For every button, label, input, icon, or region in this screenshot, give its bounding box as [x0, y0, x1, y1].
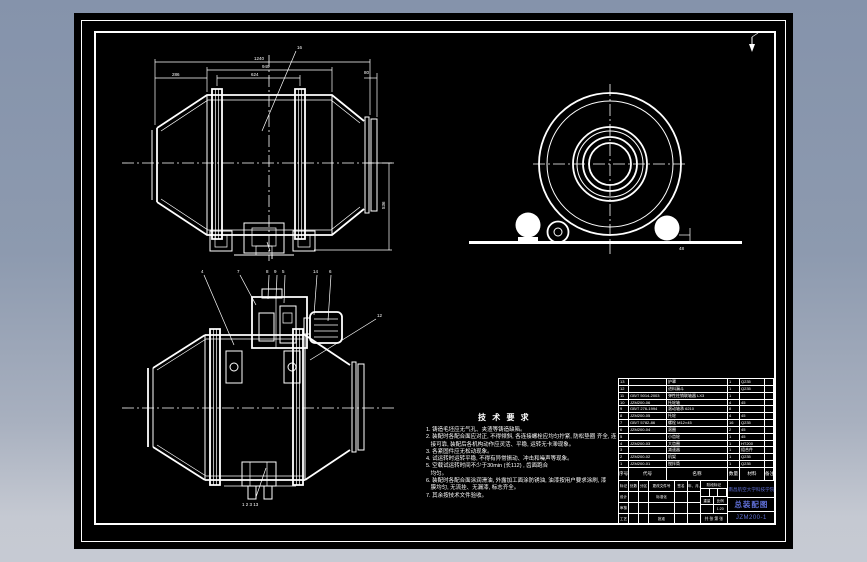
cell: 弹性柱销联轴器 LX3	[667, 393, 728, 399]
cell	[765, 420, 774, 426]
cell: 1	[728, 393, 740, 399]
tech-requirement-line: 2. 装配时各配合面应对正, 不得倾斜, 各连接螺栓应均匀拧紧, 防松垫圈 齐全…	[426, 434, 616, 441]
cell	[629, 434, 667, 440]
motor	[310, 312, 342, 343]
table-row: 7GB/T 5782-86螺栓 M12×4516Q235	[619, 419, 776, 426]
dim-band-spacing: 624	[251, 72, 259, 77]
stage-mark-label: 阶段标记	[701, 481, 727, 489]
cell	[675, 503, 688, 514]
cell	[629, 514, 639, 525]
parts-list-table: 13护罩1Q23512进料漏斗1Q23511GB/T 5014-2003弹性柱销…	[618, 378, 776, 480]
drawing-number: JZM200-1	[728, 512, 775, 524]
support-roller	[655, 216, 680, 241]
cell: Q235	[740, 454, 765, 460]
cell: 名称	[667, 468, 728, 480]
side-view-dimensions: 1240 940 624 286 80 536	[155, 56, 392, 250]
drive-pulley	[516, 213, 541, 238]
cell: JZM200-01	[629, 461, 667, 467]
cell: 进料漏斗	[667, 386, 728, 392]
dim-mid-length: 940	[262, 64, 270, 69]
cell	[765, 406, 774, 412]
table-row: 4JZM200-03大齿圈1HT200	[619, 440, 776, 447]
cell	[639, 492, 649, 503]
cell	[765, 461, 774, 467]
tech-requirement-line: 7. 其余按技术文件验收。	[426, 493, 616, 500]
cell: 10	[619, 400, 629, 406]
table-row: 2JZM200-02机架1Q235	[619, 453, 776, 460]
cell	[765, 427, 774, 433]
cell: 8	[619, 413, 629, 419]
cell	[639, 503, 649, 514]
title-block-middle: 阶段标记 重量 比例 1:20 共 张 第 张	[701, 481, 728, 524]
cell: 机架	[667, 454, 728, 460]
cell	[629, 379, 667, 385]
cell: 小齿轮	[667, 434, 728, 440]
cell: 5	[619, 434, 629, 440]
cell	[765, 447, 774, 453]
cell: 材料	[740, 468, 765, 480]
cell: 托轮	[667, 413, 728, 419]
weight-label: 重量	[701, 497, 714, 505]
cell: GB/T 5782-86	[629, 420, 667, 426]
cell: JZM200-06	[629, 400, 667, 406]
cell: 护罩	[667, 379, 728, 385]
cell: Q235	[740, 379, 765, 385]
cell	[649, 503, 675, 514]
section-label: Ⅱ	[271, 255, 273, 260]
cell: 45	[740, 434, 765, 440]
table-row: 6JZM200-04滚圈245	[619, 426, 776, 433]
projection-arrow-icon	[749, 33, 758, 52]
title-block-revision-grid: 标记处数分区更改文件号签名年、月、日 设计标准化审核工艺批准	[619, 481, 701, 524]
callout-1: 4	[201, 269, 204, 274]
drive-unit	[226, 289, 342, 383]
cell: 螺栓 M12×45	[667, 420, 728, 426]
tech-requirement-line: 均匀。	[426, 471, 616, 478]
cell: 12	[619, 386, 629, 392]
cell: 45	[740, 400, 765, 406]
cell	[629, 386, 667, 392]
cell	[629, 447, 667, 453]
role-rows: 设计标准化审核工艺批准	[619, 492, 701, 525]
cell: 滚动轴承 6210	[667, 406, 728, 412]
cell: 分区	[639, 481, 649, 492]
table-row: 11GB/T 5014-2003弹性柱销联轴器 LX31	[619, 392, 776, 399]
cell: 搅拌筒	[667, 461, 728, 467]
callout-side-leader: 16	[297, 45, 303, 50]
cell	[675, 492, 688, 503]
callout-6: 14	[313, 269, 319, 274]
table-row: 12进料漏斗1Q235	[619, 385, 776, 392]
cell: 1	[728, 434, 740, 440]
cell: 4	[728, 413, 740, 419]
cell: 4	[619, 441, 629, 447]
ground-line	[469, 241, 742, 244]
stage-mark-box	[701, 489, 727, 497]
dim-roller: 48	[679, 246, 685, 251]
drawing-title: 总装配图	[728, 498, 775, 512]
table-row: 1JZM200-01搅拌筒1Q235	[619, 460, 776, 467]
cell: Q235	[740, 420, 765, 426]
cell: 更改文件号	[649, 481, 675, 492]
cell: 45	[740, 427, 765, 433]
cell	[675, 514, 688, 525]
cell: GB/T 5014-2003	[629, 393, 667, 399]
dim-left-cone: 286	[172, 72, 180, 77]
cell	[629, 503, 639, 514]
pinion-gear	[548, 222, 569, 243]
cell	[765, 393, 774, 399]
cell: 处数	[629, 481, 639, 492]
cell: 16	[728, 420, 740, 426]
cell: 审核	[619, 503, 629, 514]
callout-7: 6	[329, 269, 332, 274]
drum-end-view: 48	[469, 84, 742, 254]
cell: JZM200-05	[629, 413, 667, 419]
title-block-right: 南昌航空大学科技学院 总装配图 JZM200-1	[728, 481, 775, 524]
cell	[765, 379, 774, 385]
callout-right: 12	[377, 313, 383, 318]
cell: 1	[728, 454, 740, 460]
weight-scale-values: 1:20	[701, 505, 727, 514]
tech-requirement-line: 5. 空载试运转时间不少于30min (长112) , 齿面跑合	[426, 463, 616, 470]
callout-4: 9	[274, 269, 277, 274]
cell: HT200	[740, 441, 765, 447]
technical-requirements-lines: 1. 铸造毛坯应无气孔、夹渣等铸造缺陷。2. 装配时各配合面应对正, 不得倾斜,…	[426, 427, 616, 500]
cell: Q235	[740, 386, 765, 392]
weight-scale-labels: 重量 比例	[701, 497, 727, 506]
cell	[688, 503, 701, 514]
table-row: 5小齿轮145	[619, 433, 776, 440]
cell: 4	[728, 400, 740, 406]
cell	[765, 454, 774, 460]
technical-requirements-title: 技 术 要 求	[478, 412, 616, 423]
cell: 签名	[675, 481, 688, 492]
dim-right-flange: 80	[364, 70, 370, 75]
cell: 年、月、日	[688, 481, 701, 492]
sheet-count: 共 张 第 张	[701, 514, 727, 524]
cell	[688, 492, 701, 503]
table-row: 10JZM200-06托轮轴445	[619, 399, 776, 406]
technical-requirements: 技 术 要 求 1. 铸造毛坯应无气孔、夹渣等铸造缺陷。2. 装配时各配合面应对…	[426, 412, 616, 500]
cell: 3	[619, 447, 629, 453]
company-name: 南昌航空大学科技学院	[728, 481, 775, 498]
title-block-role-row: 审核	[619, 503, 701, 514]
cell: 序号	[619, 468, 629, 480]
dim-height: 536	[381, 201, 386, 209]
cell	[765, 386, 774, 392]
cell	[765, 441, 774, 447]
cell	[765, 413, 774, 419]
cell: 13	[619, 379, 629, 385]
cell: 大齿圈	[667, 441, 728, 447]
cell: 工艺	[619, 514, 629, 525]
cell	[765, 434, 774, 440]
cell: 9	[619, 406, 629, 412]
cell	[740, 393, 765, 399]
cell: 代号	[629, 468, 667, 480]
table-row: 13护罩1Q235	[619, 378, 776, 385]
cell: 45	[740, 413, 765, 419]
drum-side-view: 1240 940 624 286 80 536 16	[122, 45, 396, 261]
cell	[688, 514, 701, 525]
cell: Q235	[740, 461, 765, 467]
cell: 1	[728, 441, 740, 447]
table-row: 3减速器1组合件	[619, 446, 776, 453]
tech-requirement-line: 接可靠, 装配后各机构动作应灵活、平稳, 运转无卡滞现象。	[426, 442, 616, 449]
cell: JZM200-02	[629, 454, 667, 460]
cell: 设计	[619, 492, 629, 503]
cell	[765, 400, 774, 406]
cell: 1	[728, 447, 740, 453]
cell: 6	[619, 427, 629, 433]
cell: 备注	[765, 468, 774, 480]
callout-5: 5	[282, 269, 285, 274]
cell	[629, 492, 639, 503]
cell: 标记	[619, 481, 629, 492]
scale-label: 比例	[714, 497, 727, 505]
cell: JZM200-03	[629, 441, 667, 447]
cell: 1	[728, 386, 740, 392]
cell: 滚圈	[667, 427, 728, 433]
cell: JZM200-04	[629, 427, 667, 433]
cell: 组合件	[740, 447, 765, 453]
cell: 托轮轴	[667, 400, 728, 406]
dim-overall-length: 1240	[254, 56, 265, 61]
cell	[639, 514, 649, 525]
title-block-role-row: 设计标准化	[619, 492, 701, 503]
cell: 标准化	[649, 492, 675, 503]
tech-requirement-line: 膜均匀, 无流挂、无漏漆, 标志齐全。	[426, 485, 616, 492]
bom-header-row: 序号代号名称数量材料备注	[619, 467, 776, 480]
title-block-role-row: 工艺批准	[619, 514, 701, 525]
drum-drive-view: 4 7 8 9 5 14 6 12 1 2 3 13	[122, 269, 396, 507]
desktop: { "window": { "background_top": "#8593ab…	[0, 0, 867, 562]
cell: 1	[728, 461, 740, 467]
scale-value: 1:20	[714, 505, 727, 513]
callout-bottom: 1 2 3 13	[242, 502, 259, 507]
callout-2: 7	[237, 269, 240, 274]
cell: 7	[619, 420, 629, 426]
cell: 1	[728, 379, 740, 385]
revision-header-row: 标记处数分区更改文件号签名年、月、日	[619, 481, 701, 492]
cell: 2	[728, 427, 740, 433]
bom-rows: 13护罩1Q23512进料漏斗1Q23511GB/T 5014-2003弹性柱销…	[619, 378, 776, 467]
cell: GB/T 276-1994	[629, 406, 667, 412]
cell: 2	[619, 454, 629, 460]
table-row: 8JZM200-05托轮445	[619, 412, 776, 419]
title-block: 标记处数分区更改文件号签名年、月、日 设计标准化审核工艺批准 阶段标记 重量 比…	[618, 480, 775, 524]
drive-view-callouts: 4 7 8 9 5 14 6 12 1 2 3 13	[201, 269, 383, 507]
cell: 批准	[649, 514, 675, 525]
cell: 减速器	[667, 447, 728, 453]
weight-value	[701, 505, 714, 513]
table-row: 9GB/T 276-1994滚动轴承 62108	[619, 405, 776, 412]
cell: 11	[619, 393, 629, 399]
cad-canvas: 1240 940 624 286 80 536 16	[74, 13, 793, 549]
cell: 8	[728, 406, 740, 412]
callout-3: 8	[266, 269, 269, 274]
cell	[740, 406, 765, 412]
cell: 数量	[728, 468, 740, 480]
cell: 1	[619, 461, 629, 467]
